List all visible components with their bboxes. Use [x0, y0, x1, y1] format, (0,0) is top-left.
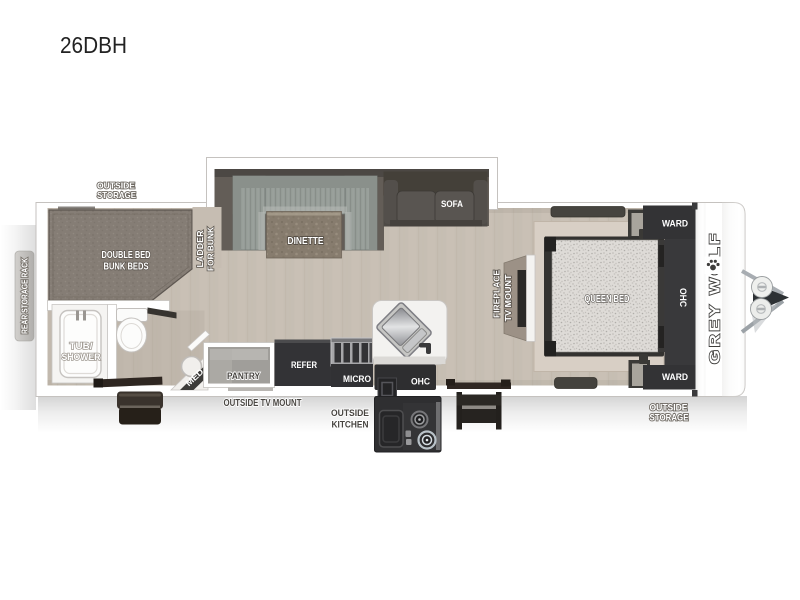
svg-text:PANTRY: PANTRY [227, 371, 261, 382]
svg-text:TV MOUNT: TV MOUNT [503, 274, 513, 322]
svg-text:REFER: REFER [291, 360, 317, 371]
svg-text:OHC: OHC [411, 377, 430, 388]
svg-text:OHC: OHC [677, 288, 688, 307]
svg-text:KITCHEN: KITCHEN [332, 420, 369, 430]
svg-text:STORAGE: STORAGE [650, 413, 689, 423]
svg-text:FIREPLACE: FIREPLACE [492, 270, 502, 318]
svg-text:OUTSIDE: OUTSIDE [97, 181, 135, 191]
svg-text:OUTSIDE: OUTSIDE [331, 408, 369, 418]
svg-text:STORAGE: STORAGE [97, 190, 136, 200]
svg-text:WARD: WARD [662, 372, 688, 383]
svg-text:GREY WOLF: GREY WOLF [708, 231, 724, 364]
svg-text:26DBH: 26DBH [60, 32, 127, 58]
svg-text:SOFA: SOFA [441, 199, 463, 210]
svg-text:LADDER: LADDER [195, 231, 205, 268]
svg-text:REAR STORAGE RACK: REAR STORAGE RACK [20, 257, 30, 334]
svg-text:OUTSIDE: OUTSIDE [650, 403, 688, 413]
svg-text:SHOWER: SHOWER [62, 352, 101, 362]
svg-text:WARD: WARD [662, 219, 688, 230]
svg-text:OUTSIDE TV MOUNT: OUTSIDE TV MOUNT [224, 398, 302, 409]
svg-text:DOUBLE BED: DOUBLE BED [102, 250, 151, 261]
svg-text:QUEEN BED: QUEEN BED [585, 294, 630, 305]
svg-text:FOR BUNK: FOR BUNK [206, 226, 216, 271]
svg-text:BUNK BEDS: BUNK BEDS [104, 262, 149, 273]
svg-text:TUB/: TUB/ [70, 341, 94, 351]
svg-text:DINETTE: DINETTE [288, 236, 324, 247]
svg-text:MICRO: MICRO [343, 374, 371, 385]
